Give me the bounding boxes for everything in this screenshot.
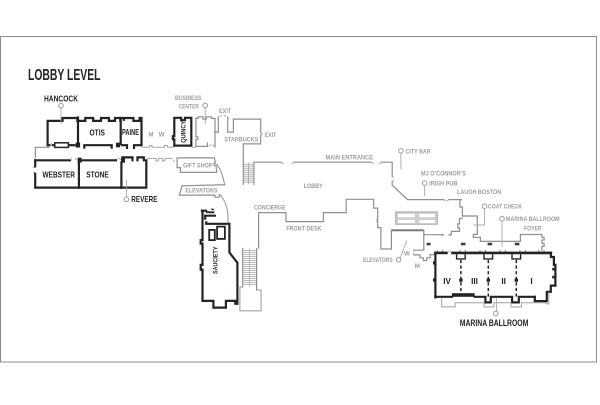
svg-text:M: M — [415, 263, 420, 270]
svg-text:SAUCIETY: SAUCIETY — [213, 246, 220, 274]
svg-text:II: II — [501, 277, 506, 286]
svg-text:REVERE: REVERE — [131, 194, 158, 204]
svg-text:ELEVATORS: ELEVATORS — [363, 257, 393, 264]
svg-text:LOBBY: LOBBY — [304, 183, 324, 190]
svg-text:MARINA BALLROOM: MARINA BALLROOM — [460, 318, 529, 328]
svg-text:III: III — [471, 277, 478, 286]
svg-text:FOYER: FOYER — [524, 226, 542, 233]
svg-text:QUINCY: QUINCY — [180, 120, 187, 143]
svg-text:LOBBY LEVEL: LOBBY LEVEL — [28, 67, 101, 84]
svg-text:M: M — [149, 132, 154, 138]
svg-text:BUSINESS: BUSINESS — [175, 95, 202, 102]
svg-text:FRONT DESK: FRONT DESK — [286, 226, 322, 233]
svg-text:PAINE: PAINE — [122, 127, 139, 137]
svg-text:ELEVATORS: ELEVATORS — [185, 188, 218, 195]
svg-text:W: W — [404, 250, 410, 257]
svg-text:CITY BAR: CITY BAR — [406, 148, 432, 155]
svg-text:GIFT SHOP: GIFT SHOP — [183, 162, 213, 169]
svg-text:IV: IV — [443, 277, 451, 286]
svg-text:HANCOCK: HANCOCK — [44, 94, 78, 104]
svg-text:WEBSTER: WEBSTER — [43, 170, 76, 180]
svg-text:CENTER: CENTER — [179, 104, 200, 111]
svg-text:STARBUCKS: STARBUCKS — [224, 136, 259, 143]
svg-text:MAIN ENTRANCE: MAIN ENTRANCE — [326, 155, 374, 162]
svg-text:CONCIERGE: CONCIERGE — [254, 204, 286, 211]
svg-text:EXIT: EXIT — [219, 108, 231, 115]
svg-text:OTIS: OTIS — [90, 127, 106, 137]
svg-text:COAT CHECK: COAT CHECK — [488, 203, 522, 210]
svg-text:IRISH PUB: IRISH PUB — [429, 181, 458, 188]
svg-text:EXIT: EXIT — [265, 132, 276, 139]
svg-text:W: W — [159, 132, 165, 138]
svg-text:STONE: STONE — [86, 170, 109, 180]
svg-text:MARINA BALLROOM: MARINA BALLROOM — [506, 216, 560, 223]
svg-text:I: I — [530, 277, 532, 286]
svg-text:MJ O’CONNOR’S: MJ O’CONNOR’S — [421, 170, 467, 177]
svg-text:LAUGH BOSTON: LAUGH BOSTON — [457, 189, 502, 196]
